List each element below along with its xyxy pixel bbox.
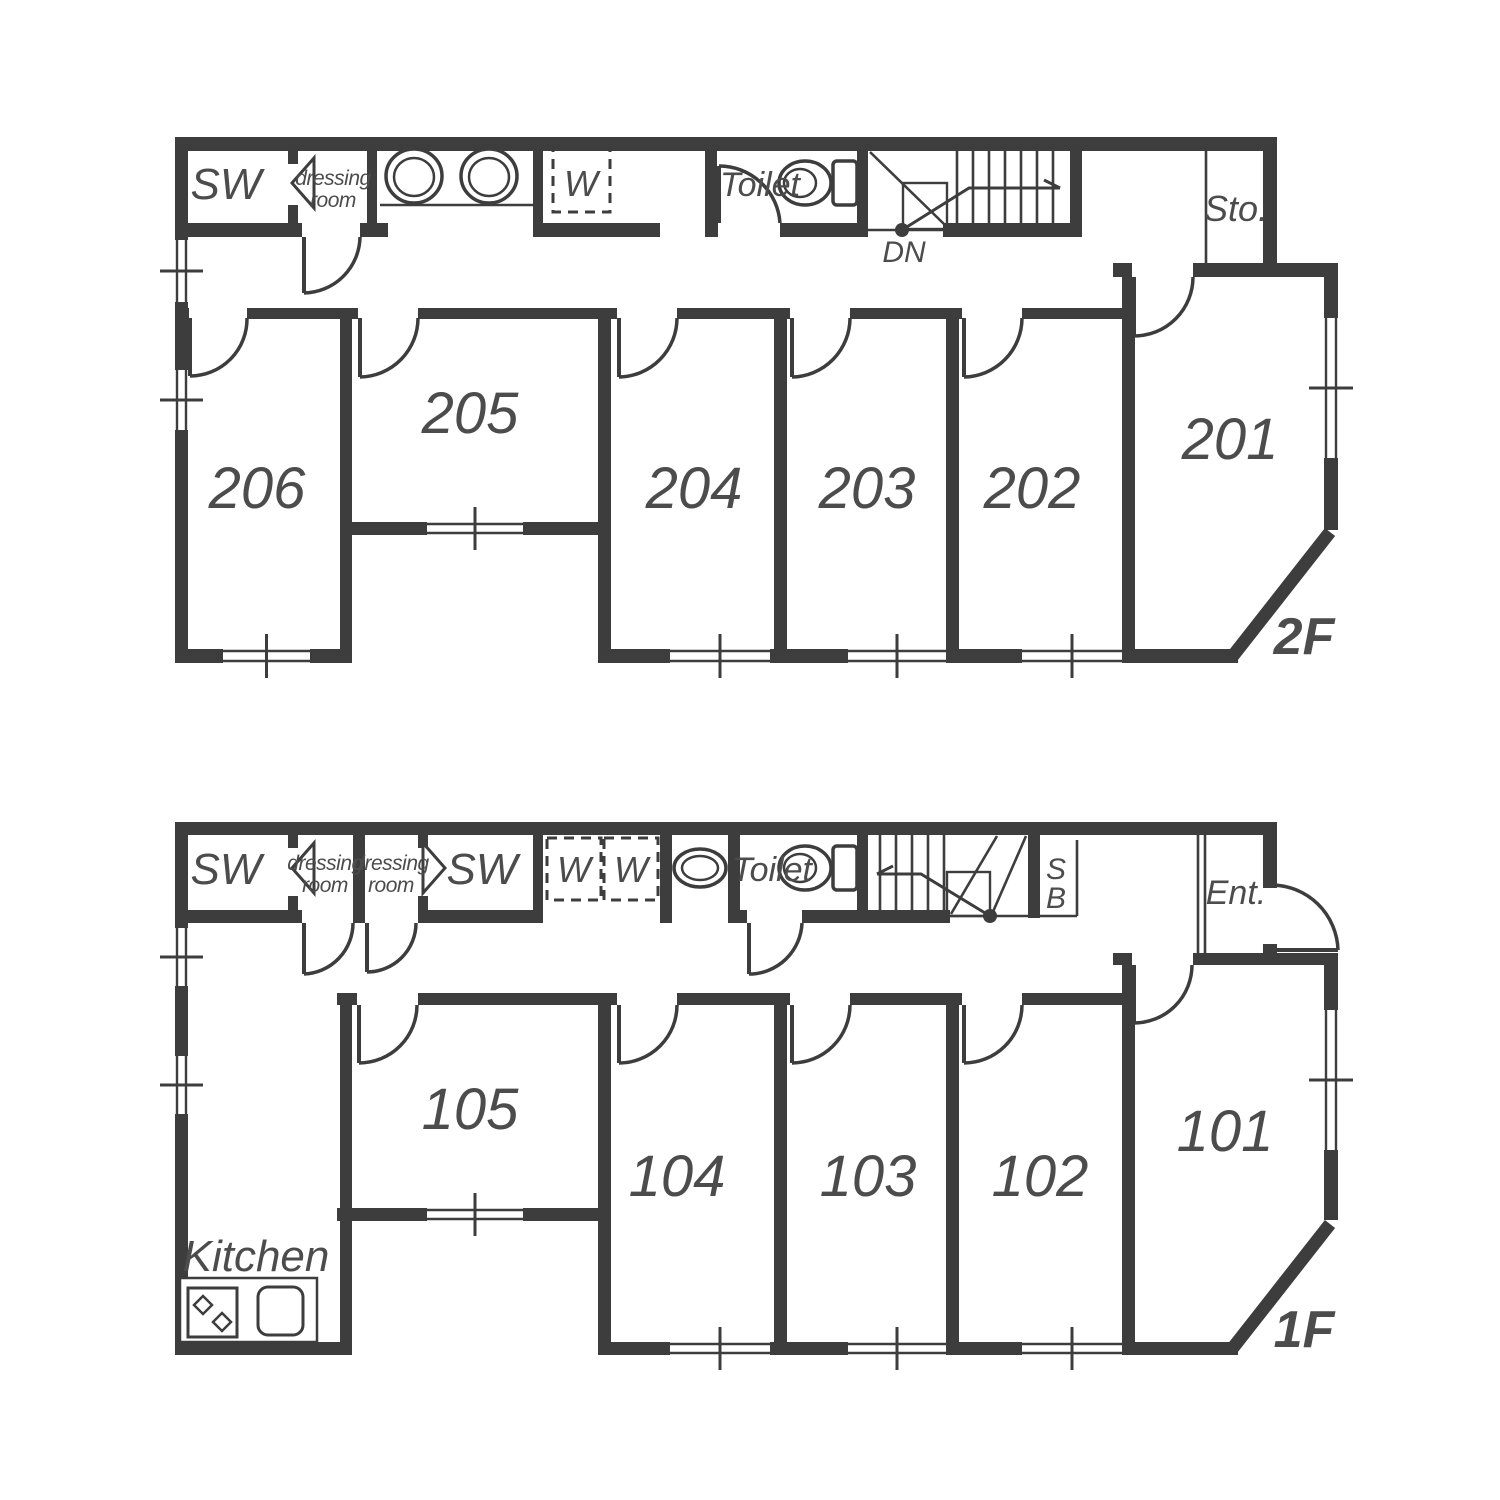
wall [360,223,388,237]
window [223,634,310,678]
wall [533,223,660,237]
walls-2f [160,137,1353,678]
wall [1070,137,1082,237]
stairs-arrow-icon [877,874,990,916]
sw-label-1f-left: SW [191,845,265,894]
dressing-room1-label-line2: room [302,874,348,897]
wall [705,143,717,237]
room-label-201: 201 [1181,407,1279,472]
storage-label: Sto. [1204,188,1268,229]
wall [943,223,1082,237]
toilet-label-2f: Toilet [720,166,802,204]
floorplan-page: SW dressing room W Toilet DN Sto. 206 20… [0,0,1500,1500]
wall [774,993,787,1355]
door-gap [189,308,247,319]
floor-tag-2f: 2F [1273,608,1336,666]
door [360,318,418,377]
stairs-newel-dot [983,909,997,923]
floorplan-canvas: SW dressing room W Toilet DN Sto. 206 20… [0,0,1500,1500]
washbasin-icon [461,149,517,203]
door-gap [790,993,850,1005]
door-gap [617,993,677,1005]
wall [175,223,302,237]
stairs-newel-dot [895,223,909,237]
kitchen-label: Kitchen [183,1232,330,1281]
wall [1028,835,1040,918]
sw-label-1f-right: SW [447,845,521,894]
wall [288,151,298,164]
door-gap [1132,953,1193,965]
washer-label-2f: W [564,163,601,204]
door-swing-arc [792,1005,850,1063]
stove-icon [188,1288,237,1337]
door [964,1005,1022,1063]
door [1134,965,1192,1023]
room-label-203: 203 [818,456,916,521]
door-gap [357,993,418,1005]
door [1270,885,1338,950]
window [160,928,203,986]
room-label-102: 102 [992,1144,1089,1209]
washer-label-1f-left: W [557,849,594,890]
window [1309,1010,1353,1150]
wall [598,308,611,663]
window [160,1056,203,1114]
door-swing-arc [190,318,247,376]
dressing-room-label-2f-line1: dressing [295,167,371,190]
thin-line [870,152,944,224]
door-gap [617,308,677,319]
window [670,1327,770,1370]
wall [353,910,365,923]
door-swing-arc [964,318,1022,377]
window [1022,634,1122,678]
door [190,318,247,376]
door-gap [358,308,418,319]
dressing-room-label-2f-line2: room [310,189,356,212]
door-swing-arc [619,318,677,377]
wall [340,308,352,663]
floor-1f: SW dressing room dressing room SW W W To… [160,822,1353,1370]
door-swing-arc [359,1005,417,1063]
door [619,318,677,377]
door [367,923,416,972]
door [792,1005,850,1063]
floor-2f: SW dressing room W Toilet DN Sto. 206 20… [160,137,1353,678]
door-gap [718,223,780,237]
window [848,634,946,678]
window [427,507,523,550]
door [304,923,353,974]
door-gap [1132,263,1193,277]
room-label-205: 205 [421,381,520,446]
door-swing-arc [367,923,416,972]
floor-tag-1f: 1F [1274,1301,1336,1359]
room-label-101: 101 [1177,1099,1274,1164]
wall [288,896,298,910]
wall [175,822,1277,835]
door [749,923,802,974]
sw-label-2f: SW [191,160,265,209]
wall [946,308,959,663]
room-label-206: 206 [208,456,307,521]
wall [418,896,428,910]
wall [946,993,959,1355]
window [848,1327,946,1370]
shoebox-label-line2: B [1046,882,1066,915]
door-swing-arc [964,1005,1022,1063]
room-label-104: 104 [629,1144,726,1209]
wall [774,308,787,663]
wall [175,137,1277,151]
wall [175,910,302,923]
door-swing-arc [1271,885,1338,950]
toilet-label-1f: Toilet [732,851,814,889]
window [160,240,203,302]
wall [288,205,298,223]
door-swing-arc [1134,965,1192,1023]
window [427,1193,523,1236]
room-label-103: 103 [820,1144,917,1209]
door-swing-arc [792,318,850,377]
kitchen-sink-icon [258,1287,303,1335]
door-swing-arc [749,923,802,974]
kitchen-counter [180,1278,317,1342]
wall [660,835,672,923]
door-gap [962,993,1022,1005]
entrance-label: Ent. [1206,874,1266,912]
door-gap [747,910,802,923]
wall [340,993,352,1355]
wall [175,1342,352,1355]
dressing-room2-label-line1: dressing [353,852,429,875]
door-swing-arc [360,318,418,377]
door-swing-arc [619,1005,677,1063]
dressing-room1-label-line1: dressing [287,852,363,875]
door [619,1005,677,1063]
door-swing-arc [304,237,360,293]
door [792,318,850,377]
room-label-204: 204 [645,456,743,521]
thin-line [992,836,1026,914]
door-gap [962,308,1022,319]
stairs-down-label: DN [882,236,926,269]
room-label-202: 202 [983,456,1081,521]
washbasin-icon [386,149,442,203]
wall [418,910,543,923]
washbasin-icon [674,849,726,887]
walls-1f [160,822,1353,1370]
door-gap [790,308,850,319]
room-label-105: 105 [422,1077,520,1142]
wall [367,143,377,237]
wall [288,835,298,848]
door [964,318,1022,377]
wall [533,143,543,237]
wall [1122,965,1135,1355]
window [160,370,203,430]
window [1309,318,1353,458]
window [1022,1327,1122,1370]
window [670,634,770,678]
door-swing-arc [1134,277,1193,336]
dressing-room2-label-line2: room [368,874,414,897]
door [304,237,360,293]
door [359,1005,417,1063]
wall [598,993,611,1355]
wall [533,835,543,923]
door-swing-arc [304,923,353,974]
door [1134,277,1193,336]
washer-label-1f-right: W [614,849,651,890]
